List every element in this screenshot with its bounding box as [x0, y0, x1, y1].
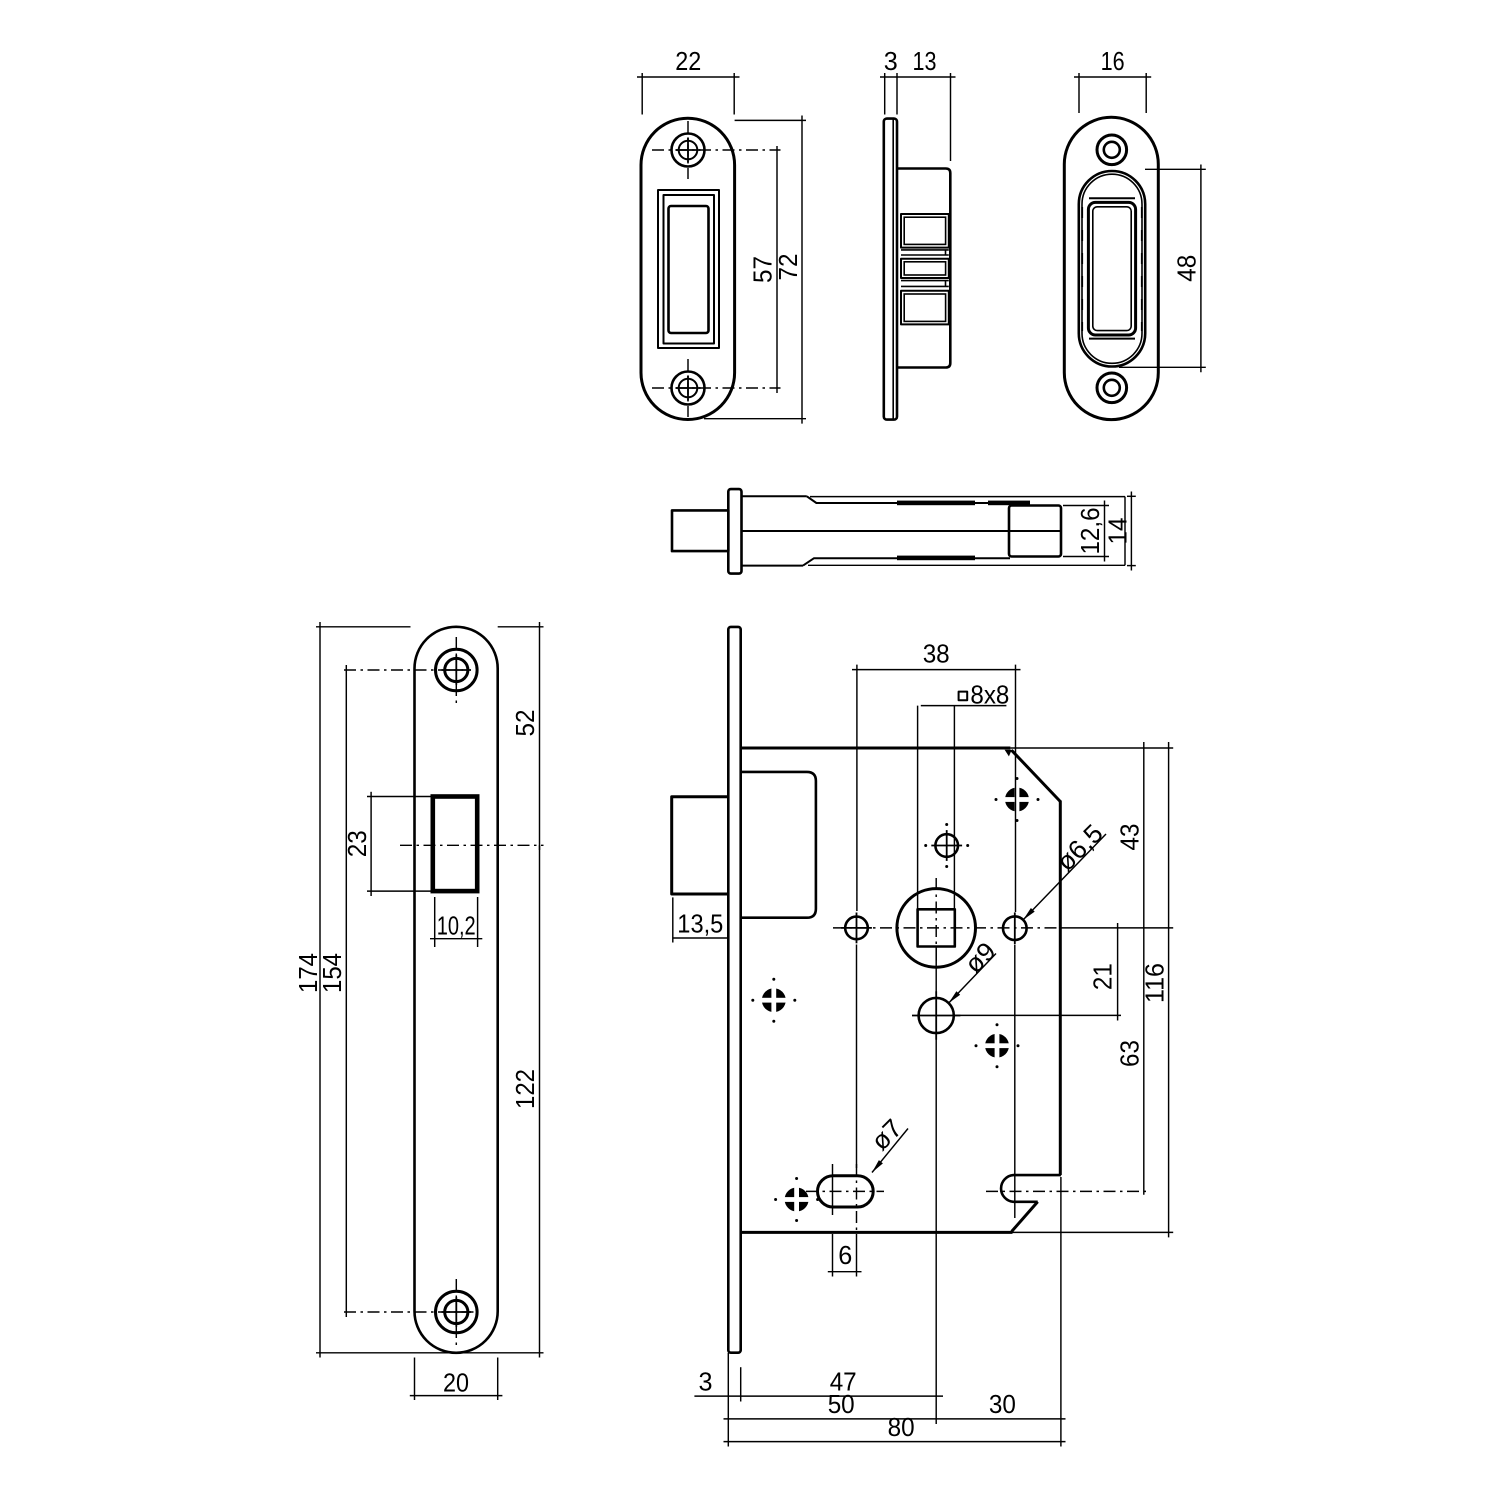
svg-text:72: 72 — [773, 254, 803, 281]
svg-text:50: 50 — [828, 1389, 855, 1419]
svg-text:48: 48 — [1172, 255, 1202, 282]
svg-text:43: 43 — [1114, 824, 1144, 851]
svg-text:14: 14 — [1102, 518, 1132, 545]
svg-text:10,2: 10,2 — [437, 911, 476, 941]
svg-text:116: 116 — [1139, 963, 1169, 1003]
svg-text:38: 38 — [923, 638, 950, 668]
svg-text:63: 63 — [1114, 1040, 1144, 1067]
svg-text:52: 52 — [510, 710, 540, 737]
svg-text:6: 6 — [838, 1240, 852, 1270]
svg-text:16: 16 — [1101, 46, 1125, 76]
svg-text:122: 122 — [510, 1069, 540, 1109]
svg-text:21: 21 — [1087, 963, 1117, 990]
svg-text:23: 23 — [342, 830, 372, 857]
svg-text:3: 3 — [699, 1366, 713, 1396]
svg-text:30: 30 — [989, 1389, 1016, 1419]
svg-text:20: 20 — [443, 1367, 469, 1397]
svg-text:80: 80 — [888, 1412, 915, 1442]
svg-text:3: 3 — [884, 46, 898, 76]
svg-text:154: 154 — [317, 953, 347, 993]
svg-text:13: 13 — [913, 46, 937, 76]
svg-text:12,6: 12,6 — [1075, 508, 1105, 555]
svg-text:22: 22 — [675, 46, 701, 76]
svg-text:13,5: 13,5 — [677, 909, 723, 939]
